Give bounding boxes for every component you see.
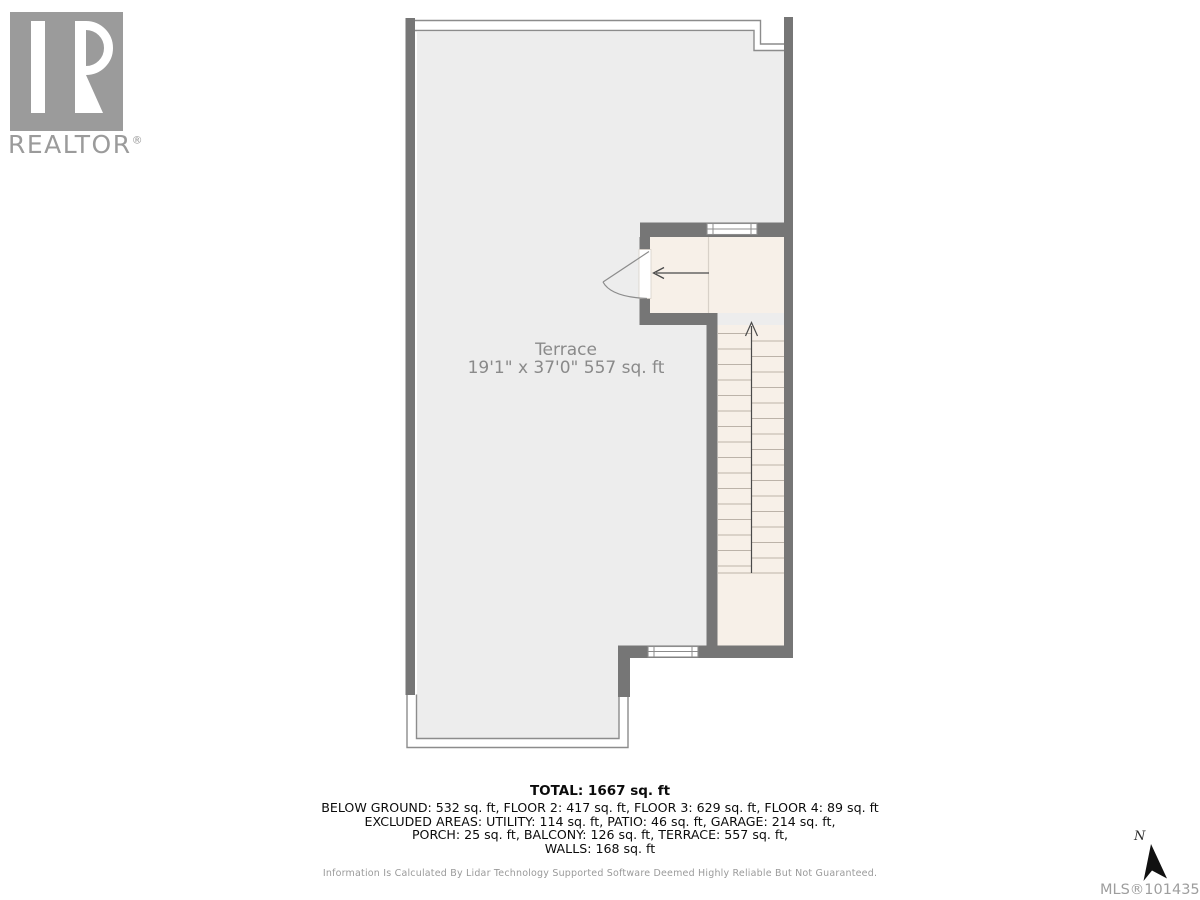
window-symbol-bottom: [648, 647, 698, 658]
realtor-wordmark: REALTOR®: [8, 130, 158, 159]
summary-line: PORCH: 25 sq. ft, BALCONY: 126 sq. ft, T…: [0, 828, 1200, 842]
floorplan-drawing: [395, 10, 805, 755]
area-summary: TOTAL: 1667 sq. ft BELOW GROUND: 532 sq.…: [0, 785, 1200, 856]
stairwell-floor: [718, 325, 785, 646]
realtor-wordmark-text: REALTOR: [8, 130, 132, 159]
window-symbol-top: [707, 224, 757, 235]
north-label: N: [1134, 829, 1145, 844]
logo-background: [10, 12, 123, 131]
registered-trademark-icon: ®: [132, 134, 143, 147]
mls-number: MLS®1014359: [1100, 882, 1196, 898]
stair-landing-floor: [650, 237, 784, 313]
summary-line: WALLS: 168 sq. ft: [0, 842, 1200, 856]
summary-line: BELOW GROUND: 532 sq. ft, FLOOR 2: 417 s…: [0, 801, 1200, 815]
room-name: Terrace: [426, 341, 706, 359]
total-area: TOTAL: 1667 sq. ft: [0, 785, 1200, 799]
room-label: Terrace 19'1" x 37'0" 557 sq. ft: [426, 341, 706, 378]
disclaimer-text: Information Is Calculated By Lidar Techn…: [0, 868, 1200, 879]
compass: N: [1128, 828, 1188, 884]
realtor-logo: [10, 12, 123, 131]
summary-line: EXCLUDED AREAS: UTILITY: 114 sq. ft, PAT…: [0, 815, 1200, 829]
room-dimensions: 19'1" x 37'0" 557 sq. ft: [426, 359, 706, 378]
